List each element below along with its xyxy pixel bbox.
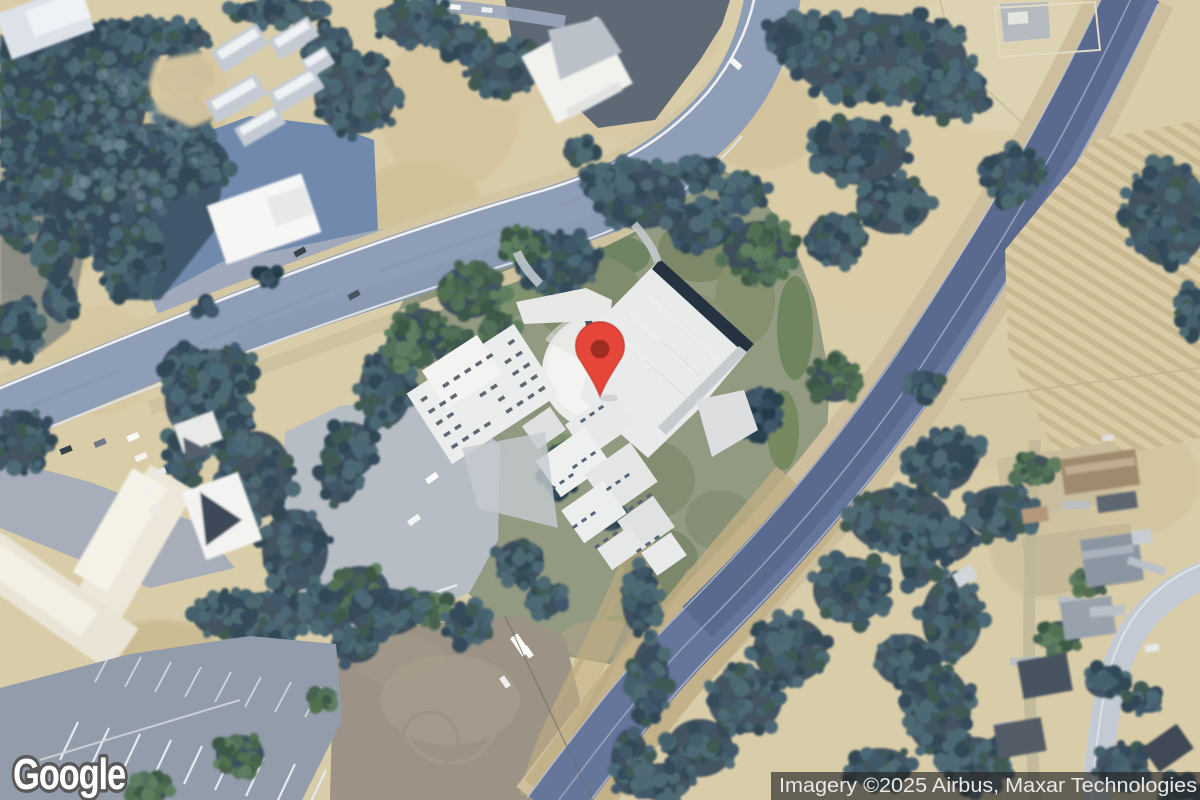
svg-text:Google: Google <box>13 750 125 799</box>
svg-text:Imagery ©2025 Airbus, Maxar Te: Imagery ©2025 Airbus, Maxar Technologies <box>779 774 1197 797</box>
